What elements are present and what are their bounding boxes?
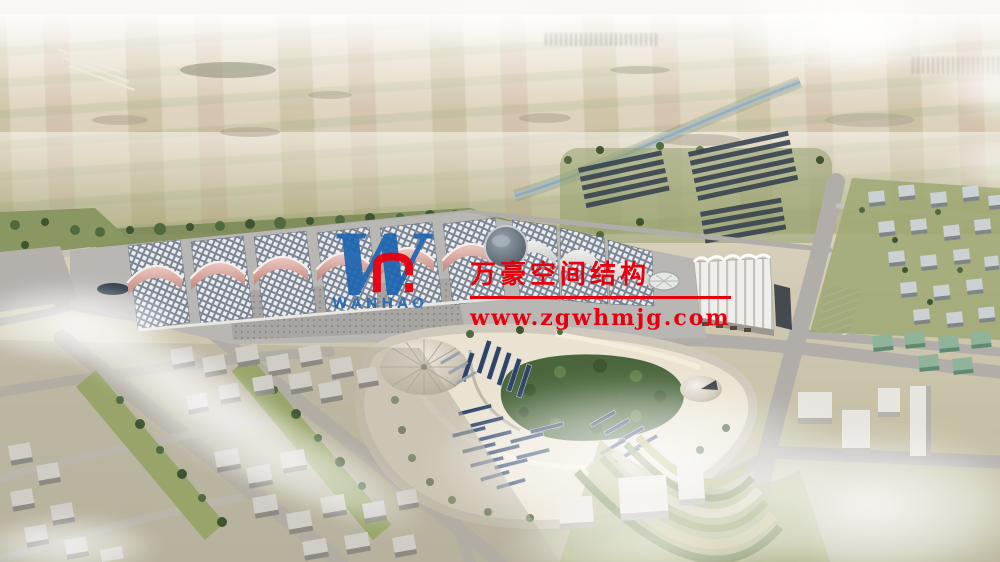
watermark-texts: 万豪空间结构 www.zgwhmjg.com <box>470 232 731 331</box>
cloud <box>948 138 1000 190</box>
cloud <box>500 498 805 562</box>
watermark: W WANHAO 万豪空间结构 www.zgwhmjg.com <box>332 232 731 331</box>
distant-villages <box>92 62 915 146</box>
watermark-url: www.zgwhmjg.com <box>470 305 731 331</box>
cloud <box>420 2 570 44</box>
wanhao-logo: W WANHAO <box>332 232 452 316</box>
cloud <box>0 515 160 562</box>
airport-runways <box>53 48 139 91</box>
cloud <box>800 0 950 70</box>
dark-shed <box>774 284 792 330</box>
logo-wordmark: WANHAO <box>332 296 452 312</box>
logo-monogram-icon <box>370 252 416 298</box>
cloud <box>938 48 1000 120</box>
watermark-title: 万豪空间结构 <box>470 254 731 299</box>
aerial-rendering-canvas: W WANHAO 万豪空间结构 www.zgwhmjg.com <box>0 0 1000 562</box>
